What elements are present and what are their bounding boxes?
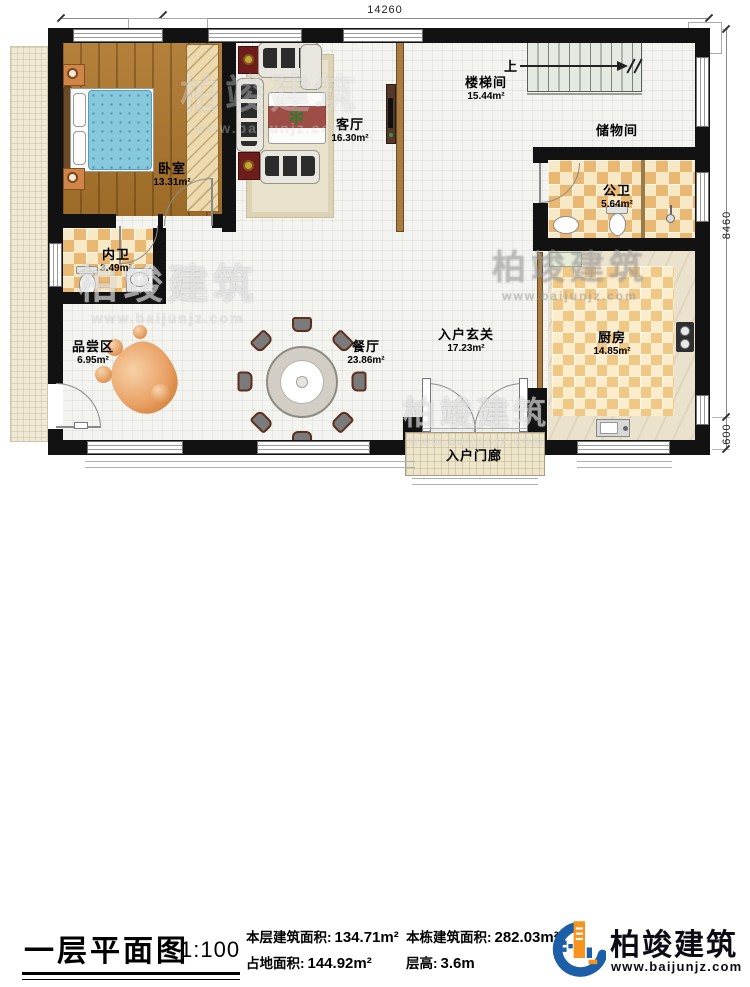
door-leaf — [211, 178, 213, 226]
brand-logo-icon — [550, 920, 606, 987]
room-label-storage: 储物间 — [585, 124, 649, 139]
kitchen-counter-edge — [537, 252, 543, 390]
window — [696, 172, 709, 222]
sink — [130, 272, 149, 287]
brand-url: www.baijunjz.com — [611, 959, 742, 974]
dining-chair — [352, 372, 367, 392]
table-lamp — [243, 160, 254, 171]
entrance-door-leaf — [519, 378, 528, 432]
room-label-stairwell: 楼梯间 15.44m² — [454, 76, 518, 102]
kitchen-faucet — [623, 426, 628, 431]
dining-chair — [238, 372, 253, 392]
wall — [222, 28, 236, 232]
stairs-arrow-icon — [617, 61, 628, 71]
wall — [158, 214, 163, 228]
window — [343, 29, 423, 42]
sofa-chaise — [300, 44, 322, 90]
shower-head — [666, 214, 675, 223]
stove-burner — [680, 339, 690, 349]
tv-shelf-plant — [389, 133, 393, 137]
drawing-scale: 1:100 — [180, 937, 240, 963]
dimension-ext — [712, 417, 730, 418]
stat-floor-area: 本层建筑面积:134.71m² — [246, 926, 399, 946]
door-handle — [74, 422, 88, 429]
window — [87, 441, 183, 454]
brand-name: 柏竣建筑 — [610, 920, 738, 964]
dimension-tick — [705, 14, 713, 22]
tasting-decor-dot — [133, 325, 147, 339]
dimension-label-top: 14260 — [350, 4, 420, 16]
drawing-title: 一层平面图 — [24, 926, 189, 970]
window-sill — [577, 461, 672, 468]
room-label-kitchen: 厨房 14.85m² — [580, 331, 644, 357]
wall — [62, 292, 166, 304]
window — [696, 57, 709, 127]
dimension-label-right-lower: 600 — [721, 419, 733, 449]
plant-icon: ✻ — [288, 108, 305, 128]
title-underline — [22, 972, 240, 975]
window-sill — [85, 461, 415, 468]
tv-partition-wall — [396, 40, 404, 232]
wall — [212, 214, 236, 228]
window — [73, 29, 163, 42]
staircase-edge — [527, 93, 642, 95]
room-label-foyer: 入户玄关 17.23m² — [428, 328, 504, 354]
toilet — [609, 213, 626, 236]
room-label-living: 客厅 16.30m² — [318, 118, 382, 144]
room-label-public-bath: 公卫 5.64m² — [585, 184, 649, 210]
dimension-label-right: 8460 — [721, 203, 733, 247]
room-label-porch: 入户门廊 — [434, 449, 514, 464]
bed-pillow — [73, 131, 86, 165]
door-leaf — [539, 163, 541, 203]
dining-chair — [292, 317, 312, 332]
stairs-up-label: 上 — [504, 56, 517, 75]
tv-screen — [388, 98, 393, 128]
table-lamp — [243, 54, 254, 65]
stat-floor-height: 层高:3.6m — [406, 952, 475, 972]
shower-stem — [670, 205, 672, 214]
fridge — [549, 252, 582, 267]
room-label-bedroom: 卧室 13.31m² — [140, 162, 204, 188]
dimension-ext — [712, 449, 730, 450]
window — [696, 395, 709, 425]
title-underline-thin — [22, 979, 240, 980]
room-label-dining: 餐厅 23.86m² — [334, 340, 398, 366]
wall — [62, 214, 116, 228]
stat-total-area: 本栋建筑面积:282.03m² — [406, 926, 559, 946]
window — [49, 243, 62, 287]
porch-step — [412, 478, 538, 485]
sink — [553, 216, 579, 234]
dining-table-center — [296, 376, 308, 388]
window — [208, 29, 302, 42]
room-label-tasting: 品尝区 6.95m² — [61, 340, 125, 366]
floor-plan-canvas: 14260 8460 600 上 — [0, 0, 750, 531]
stairs-direction-line — [520, 65, 618, 67]
tasting-decor-dot — [95, 366, 112, 383]
bed-duvet — [88, 90, 152, 170]
sofa-cushions — [265, 156, 315, 176]
entrance-door-leaf — [422, 378, 431, 432]
tasting-decor-dot — [151, 384, 170, 403]
wall — [533, 147, 710, 160]
nightstand-lamp — [67, 68, 78, 79]
room-label-private-bath: 内卫 3.49m² — [84, 248, 148, 274]
side-terrace — [10, 46, 48, 442]
sofa-cushions — [241, 84, 257, 146]
stat-footprint-area: 占地面积:144.92m² — [246, 952, 372, 972]
floor-plan-page: 14260 8460 600 上 — [0, 0, 750, 531]
stove-burner — [680, 326, 690, 336]
kitchen-sink-basin — [600, 422, 618, 434]
wall — [533, 238, 710, 251]
window — [577, 441, 670, 454]
bed-pillow — [73, 93, 86, 127]
nightstand-lamp — [67, 172, 78, 183]
window — [257, 441, 370, 454]
